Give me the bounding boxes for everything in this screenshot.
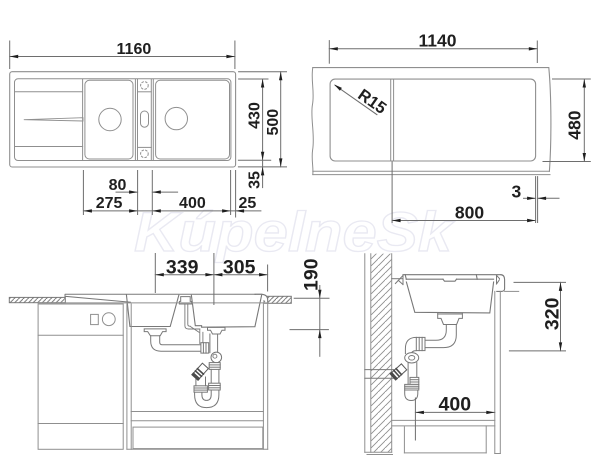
svg-text:305: 305 xyxy=(223,257,256,279)
svg-text:400: 400 xyxy=(179,195,206,212)
svg-text:190: 190 xyxy=(300,258,322,291)
svg-text:500: 500 xyxy=(265,109,282,136)
svg-text:480: 480 xyxy=(565,110,585,139)
svg-text:800: 800 xyxy=(455,203,484,223)
svg-text:1160: 1160 xyxy=(117,41,152,58)
svg-text:320: 320 xyxy=(541,297,563,330)
svg-text:25: 25 xyxy=(239,195,257,212)
svg-text:275: 275 xyxy=(96,195,123,212)
svg-text:430: 430 xyxy=(247,102,264,129)
svg-text:339: 339 xyxy=(166,257,199,279)
svg-text:35: 35 xyxy=(246,171,263,189)
svg-text:3: 3 xyxy=(512,181,522,201)
svg-text:400: 400 xyxy=(439,393,472,415)
svg-text:80: 80 xyxy=(109,177,127,194)
svg-text:1140: 1140 xyxy=(419,30,457,50)
